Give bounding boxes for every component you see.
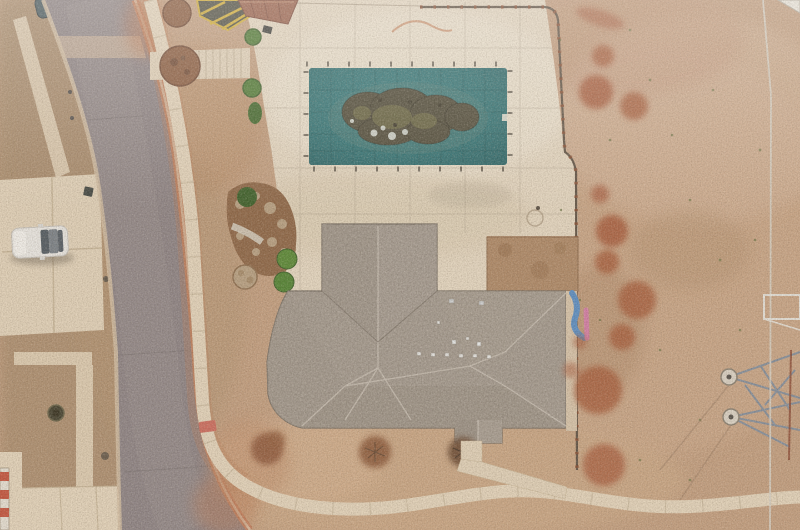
haze-overlay	[0, 0, 800, 210]
aerial-photograph	[0, 0, 800, 530]
